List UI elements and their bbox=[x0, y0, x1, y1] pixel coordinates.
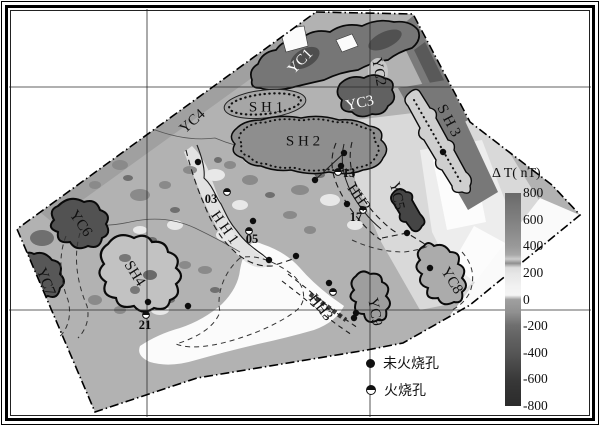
colorbar-tick--400: -400 bbox=[523, 346, 548, 360]
colorbar-tick--600: -600 bbox=[523, 372, 548, 386]
zone-label-sh1: S H 1 bbox=[249, 99, 283, 115]
unburned-hole-marker bbox=[427, 265, 433, 271]
hole-number-label: 03 bbox=[205, 192, 218, 206]
hole-number-label: 21 bbox=[139, 318, 152, 332]
filled-circle-icon bbox=[366, 359, 375, 368]
unburned-hole-marker bbox=[326, 280, 332, 286]
colorbar-tick-400: 400 bbox=[523, 239, 543, 253]
unburned-hole-marker bbox=[344, 201, 350, 207]
unburned-hole-marker bbox=[312, 177, 318, 183]
unburned-hole-marker bbox=[266, 257, 272, 263]
colorbar-title: Δ T( nT) bbox=[492, 166, 541, 182]
unburned-hole-marker bbox=[145, 299, 151, 305]
figure: YC1YC2YC3YC4YC5YC6YC7YC8YC9S H 1S H 2S H… bbox=[0, 0, 600, 426]
hole-number-label: 13 bbox=[343, 166, 356, 180]
legend-label: 火烧孔 bbox=[384, 380, 426, 400]
map-legend: 未火烧孔火烧孔 bbox=[366, 353, 439, 407]
colorbar-tick-600: 600 bbox=[523, 213, 543, 227]
colorbar-tick-0: 0 bbox=[523, 293, 530, 307]
unburned-hole-marker bbox=[351, 315, 357, 321]
zone-label-sh2: S H 2 bbox=[286, 133, 320, 149]
unburned-hole-marker bbox=[185, 303, 191, 309]
colorbar-gradient bbox=[505, 193, 521, 406]
unburned-hole-marker bbox=[250, 218, 256, 224]
unburned-hole-marker bbox=[293, 253, 299, 259]
unburned-hole-marker bbox=[195, 159, 201, 165]
hole-number-label: 17 bbox=[350, 210, 363, 224]
colorbar-tick-800: 800 bbox=[523, 186, 543, 200]
colorbar-tick--200: -200 bbox=[523, 319, 548, 333]
legend-label: 未火烧孔 bbox=[383, 353, 439, 373]
unburned-hole-marker bbox=[440, 149, 446, 155]
colorbar-tick-200: 200 bbox=[523, 266, 543, 280]
hole-number-label: 05 bbox=[246, 232, 259, 246]
legend-item-1: 未火烧孔 bbox=[366, 353, 439, 373]
colorbar: Δ T( nT) 8006004002000-200-400-600-800 bbox=[492, 166, 588, 418]
half-filled-circle-icon bbox=[366, 385, 376, 395]
unburned-hole-marker bbox=[404, 230, 410, 236]
unburned-hole-marker bbox=[341, 150, 347, 156]
legend-item-2: 火烧孔 bbox=[366, 380, 439, 400]
colorbar-tick--800: -800 bbox=[523, 399, 548, 413]
